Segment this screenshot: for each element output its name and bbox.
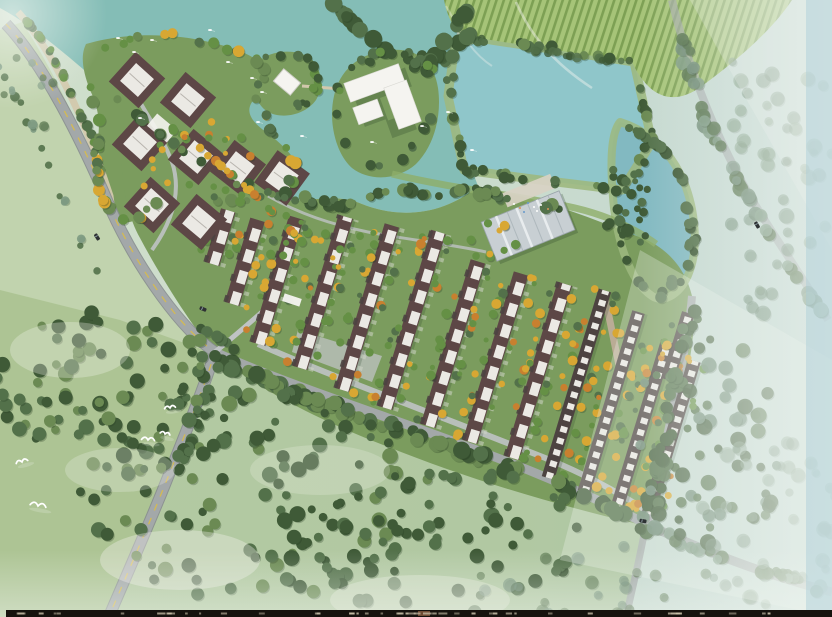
tree <box>513 403 520 410</box>
tree <box>208 118 216 126</box>
film-strip-dash <box>408 613 416 615</box>
tree <box>408 279 415 286</box>
tree <box>625 124 633 132</box>
tree <box>300 258 309 267</box>
tree <box>617 240 624 247</box>
tree <box>327 299 335 307</box>
tree <box>507 345 512 350</box>
tree <box>498 381 505 388</box>
tree <box>379 538 388 547</box>
tree <box>619 231 626 238</box>
tree <box>435 192 443 200</box>
tree <box>308 285 313 290</box>
tree <box>310 392 325 407</box>
film-strip-dash <box>315 613 320 615</box>
aerial-rendering: Aerial rendering of lakeside residential… <box>0 0 832 617</box>
tree <box>390 268 399 277</box>
tree <box>262 54 269 61</box>
tree <box>583 383 592 392</box>
tree <box>78 406 87 415</box>
tree <box>283 357 292 366</box>
tree <box>626 189 636 199</box>
tree <box>160 364 169 373</box>
tree <box>246 152 255 161</box>
tree <box>578 457 586 465</box>
tree <box>191 395 203 407</box>
tree <box>76 487 85 496</box>
tree <box>262 110 272 120</box>
film-strip-dash <box>199 613 201 615</box>
tree <box>560 384 567 391</box>
tree <box>498 283 503 288</box>
tree <box>609 300 616 307</box>
film-strip-dash <box>768 613 771 615</box>
film-strip-dash <box>676 613 682 615</box>
tree <box>432 274 438 280</box>
tree <box>426 70 433 77</box>
tree <box>295 320 305 330</box>
tree <box>482 268 490 276</box>
tree <box>367 253 376 262</box>
tree <box>87 83 95 91</box>
tree <box>336 431 347 442</box>
tree <box>210 183 217 190</box>
tree <box>503 195 510 202</box>
film-strip-dash <box>588 613 593 615</box>
tree <box>550 176 560 186</box>
tree <box>370 230 376 236</box>
tree <box>290 229 298 237</box>
tree <box>496 227 502 233</box>
tree <box>618 58 625 65</box>
tree <box>181 413 196 428</box>
tree <box>470 306 477 313</box>
tree <box>136 114 148 126</box>
tree <box>359 528 371 540</box>
tree <box>485 275 491 281</box>
tree <box>357 293 362 298</box>
tree <box>481 526 489 534</box>
tree <box>336 264 342 270</box>
tree <box>243 186 250 193</box>
tree <box>266 250 275 259</box>
tree <box>424 469 434 479</box>
tree <box>518 377 526 385</box>
tree <box>297 237 307 247</box>
film-strip-dash <box>548 613 553 615</box>
tree <box>456 6 474 24</box>
tree <box>356 232 364 240</box>
tree <box>303 538 312 547</box>
tree <box>596 395 601 400</box>
tree <box>602 56 611 65</box>
film-strip-dash <box>438 613 447 615</box>
tree <box>332 110 341 119</box>
tree <box>385 276 394 285</box>
tree <box>282 144 290 152</box>
tree <box>403 477 416 490</box>
tree <box>375 378 384 387</box>
tree <box>613 204 623 214</box>
tree <box>540 201 553 214</box>
tree <box>177 362 188 373</box>
tree <box>341 11 352 22</box>
tree <box>611 291 620 300</box>
tree <box>519 454 528 463</box>
tree <box>577 403 586 412</box>
tree <box>601 329 606 334</box>
tree <box>302 224 309 231</box>
tree <box>133 32 142 41</box>
tree <box>181 518 193 530</box>
tree <box>373 515 384 526</box>
tree <box>194 38 203 47</box>
tree <box>416 239 426 249</box>
tree <box>237 133 246 142</box>
film-strip-dash <box>514 613 516 615</box>
tree <box>95 398 104 407</box>
tree <box>228 344 239 355</box>
layer-filmstrip <box>6 610 832 617</box>
film-strip-dash <box>259 613 265 615</box>
tree <box>454 184 466 196</box>
tree <box>177 386 186 395</box>
tree <box>507 471 520 484</box>
tree <box>232 238 239 245</box>
tree <box>182 134 188 140</box>
tree <box>303 100 310 107</box>
tree <box>396 394 405 403</box>
tree <box>386 48 397 59</box>
tree <box>550 493 558 501</box>
tree <box>305 293 311 299</box>
tree <box>431 280 438 287</box>
tree <box>479 188 491 200</box>
tree <box>523 298 533 308</box>
tree <box>224 168 231 175</box>
cyan-edge-band <box>806 0 832 617</box>
tree <box>625 57 633 65</box>
tree <box>559 373 565 379</box>
tree <box>336 245 344 253</box>
tree <box>220 414 228 422</box>
tree <box>222 186 230 194</box>
tree <box>510 338 517 345</box>
tree <box>412 529 424 541</box>
tree <box>581 318 588 325</box>
tree <box>489 310 498 319</box>
tree <box>209 350 221 362</box>
tree <box>569 340 576 347</box>
tree <box>441 309 451 319</box>
tree <box>530 275 537 282</box>
person-dot <box>527 202 529 204</box>
tree <box>457 371 462 376</box>
film-strip-dash <box>221 613 227 615</box>
tree <box>93 114 106 127</box>
film-strip-dash <box>471 613 475 615</box>
tree <box>293 100 301 108</box>
tree <box>308 505 316 513</box>
tree <box>76 112 86 122</box>
tree <box>269 236 278 245</box>
film-strip-dash <box>57 613 61 615</box>
tree <box>314 533 323 542</box>
person-dot <box>536 210 538 212</box>
tree <box>429 537 441 549</box>
tree <box>397 154 408 165</box>
tree <box>321 409 329 417</box>
mist-patch-5 <box>65 448 175 492</box>
film-strip-dash <box>506 613 512 615</box>
tree <box>196 351 208 363</box>
tree <box>425 500 434 509</box>
tree <box>397 509 406 518</box>
tree <box>366 160 376 170</box>
tree <box>233 45 245 57</box>
tree <box>330 255 335 260</box>
tree <box>92 138 104 150</box>
tree <box>543 381 550 388</box>
tree <box>395 324 402 331</box>
tree <box>277 389 290 402</box>
tree <box>541 435 548 442</box>
tree <box>527 360 534 367</box>
tree <box>45 162 52 169</box>
tree <box>158 392 167 401</box>
film-strip-dash <box>454 613 459 615</box>
tree <box>127 420 141 434</box>
tree <box>272 324 281 333</box>
film-strip-dash <box>185 613 188 615</box>
tree <box>354 492 362 500</box>
tree <box>209 518 220 529</box>
tree <box>279 252 287 260</box>
tree <box>147 337 158 348</box>
tree <box>438 409 447 418</box>
tree <box>251 261 260 270</box>
tree <box>101 411 115 425</box>
tree <box>298 220 303 225</box>
tree <box>244 304 250 310</box>
tree <box>260 238 265 243</box>
tree <box>333 500 342 509</box>
tree <box>392 421 402 431</box>
tree <box>148 317 163 332</box>
tree <box>293 338 301 346</box>
person-dot <box>513 203 515 205</box>
tree <box>260 283 269 292</box>
tree <box>41 397 52 408</box>
tree <box>33 427 47 441</box>
render-layers <box>0 0 832 617</box>
tree <box>349 247 356 254</box>
tree <box>501 247 508 254</box>
tree <box>340 138 351 149</box>
tree <box>621 177 630 186</box>
tree <box>309 84 318 93</box>
tree <box>540 387 549 396</box>
tree <box>523 529 533 539</box>
film-strip-dash <box>729 613 736 615</box>
masterplan-canvas <box>0 0 832 617</box>
film-strip-dash <box>356 613 358 615</box>
mist-patch-2 <box>100 530 260 590</box>
tree <box>90 150 97 157</box>
tree <box>265 375 279 389</box>
tree <box>489 491 498 500</box>
tree <box>12 422 27 437</box>
tree <box>473 446 488 461</box>
tree <box>375 486 387 498</box>
tree <box>308 198 317 207</box>
tree <box>484 337 489 342</box>
tree <box>314 74 323 83</box>
tree <box>535 455 542 462</box>
film-strip-dash <box>349 613 355 615</box>
tree <box>484 219 492 227</box>
film-strip-dash <box>396 613 402 615</box>
tree <box>385 342 392 349</box>
tree <box>568 356 578 366</box>
tree <box>101 44 109 52</box>
tree <box>348 64 355 71</box>
tree <box>164 179 171 186</box>
tree <box>287 530 302 545</box>
tree <box>265 336 275 346</box>
tree <box>271 418 279 426</box>
tree <box>169 125 178 134</box>
tree <box>225 250 233 258</box>
tree <box>322 419 335 432</box>
film-strip-dash <box>18 613 26 615</box>
tree <box>250 56 262 68</box>
tree <box>282 212 290 220</box>
tree <box>289 506 305 522</box>
tree <box>235 231 243 239</box>
tree <box>535 308 545 318</box>
tree <box>589 377 597 385</box>
tree <box>433 436 448 451</box>
tree <box>554 48 561 55</box>
person-dot <box>533 206 535 208</box>
bottom-film-strip <box>6 610 832 617</box>
tree <box>167 28 177 38</box>
tree <box>418 122 430 134</box>
tree <box>88 494 100 506</box>
film-strip-dash <box>423 613 432 615</box>
tree <box>203 498 217 512</box>
tree <box>93 267 100 274</box>
film-strip-dash <box>121 613 124 615</box>
tree <box>532 319 541 328</box>
tree <box>572 53 582 63</box>
tree <box>443 248 449 254</box>
tree <box>469 392 476 399</box>
tree <box>172 398 185 411</box>
tree <box>472 252 480 260</box>
tree <box>553 402 562 411</box>
tree <box>591 285 599 293</box>
tree <box>614 215 625 226</box>
tree <box>566 53 573 60</box>
tree <box>391 472 399 480</box>
tree <box>113 95 121 103</box>
tree <box>257 293 263 299</box>
mist-patch-1 <box>10 322 130 378</box>
tree <box>196 362 204 370</box>
tree <box>459 29 475 45</box>
tree <box>382 188 390 196</box>
tree <box>39 121 49 131</box>
tree <box>407 361 413 367</box>
tree <box>216 473 228 485</box>
tree <box>622 209 630 217</box>
tree <box>221 396 237 412</box>
tree <box>336 338 344 346</box>
tree <box>283 175 294 186</box>
tree <box>126 320 140 334</box>
tree <box>510 517 524 531</box>
tree <box>443 236 452 245</box>
tree <box>254 80 262 88</box>
tree <box>149 156 156 163</box>
film-strip-dash <box>406 613 409 615</box>
tree <box>193 334 206 347</box>
tree <box>466 235 475 244</box>
person-dot <box>523 211 525 213</box>
tree <box>28 119 38 129</box>
tree <box>336 284 345 293</box>
tree <box>301 275 309 283</box>
tree <box>357 55 366 64</box>
tree <box>92 166 101 175</box>
tree <box>446 88 456 98</box>
tree <box>597 182 609 194</box>
tree <box>207 439 220 452</box>
tree <box>341 403 355 417</box>
tree <box>604 218 614 228</box>
tree <box>413 415 421 423</box>
tree <box>506 174 515 183</box>
tree <box>396 249 401 254</box>
tree <box>403 383 410 390</box>
tree <box>336 87 343 94</box>
tree <box>589 423 595 429</box>
tree <box>223 151 228 156</box>
person-dot <box>540 204 542 206</box>
tree <box>410 58 420 68</box>
tree <box>193 405 202 414</box>
tree <box>354 371 362 379</box>
tree <box>318 237 324 243</box>
tree <box>365 348 373 356</box>
tree <box>289 276 297 284</box>
tree <box>459 408 468 417</box>
tree <box>483 472 496 485</box>
tree <box>130 373 145 388</box>
tree <box>364 30 382 48</box>
tree <box>204 152 212 160</box>
tree <box>488 513 503 528</box>
tree <box>376 48 385 57</box>
mist-patch-4 <box>250 445 390 495</box>
tree <box>184 447 193 456</box>
tree <box>143 206 150 213</box>
tree <box>264 220 273 229</box>
tree <box>553 499 565 511</box>
tree <box>321 318 329 326</box>
